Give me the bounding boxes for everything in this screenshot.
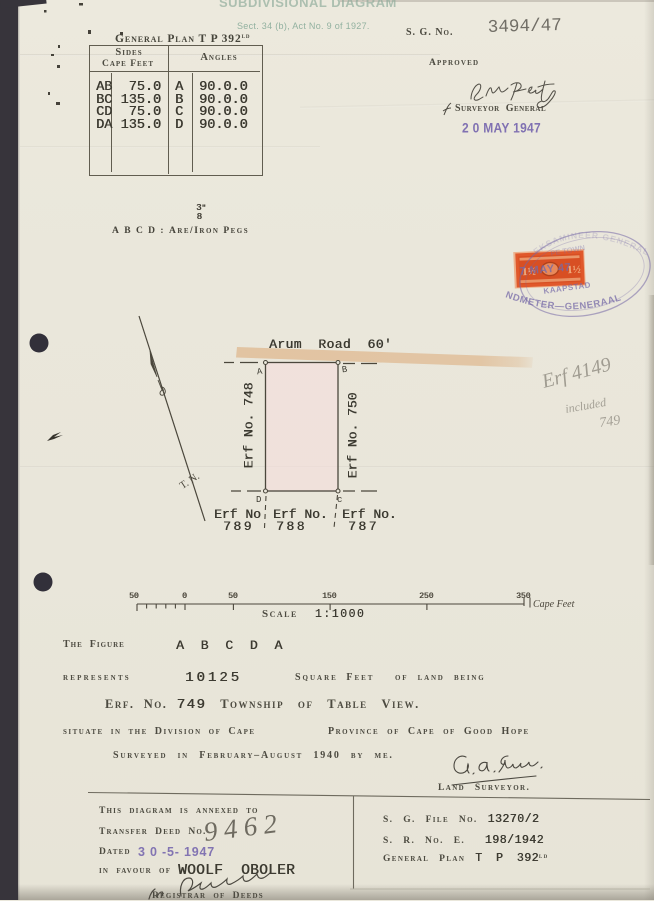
svg-text:Cape Feet: Cape Feet [533,599,575,610]
svg-text:Erf 4149: Erf 4149 [539,353,614,393]
svg-text:749: 749 [598,413,621,431]
svg-text:T. N.: T. N. [178,471,202,492]
svg-text:included: included [564,395,608,416]
